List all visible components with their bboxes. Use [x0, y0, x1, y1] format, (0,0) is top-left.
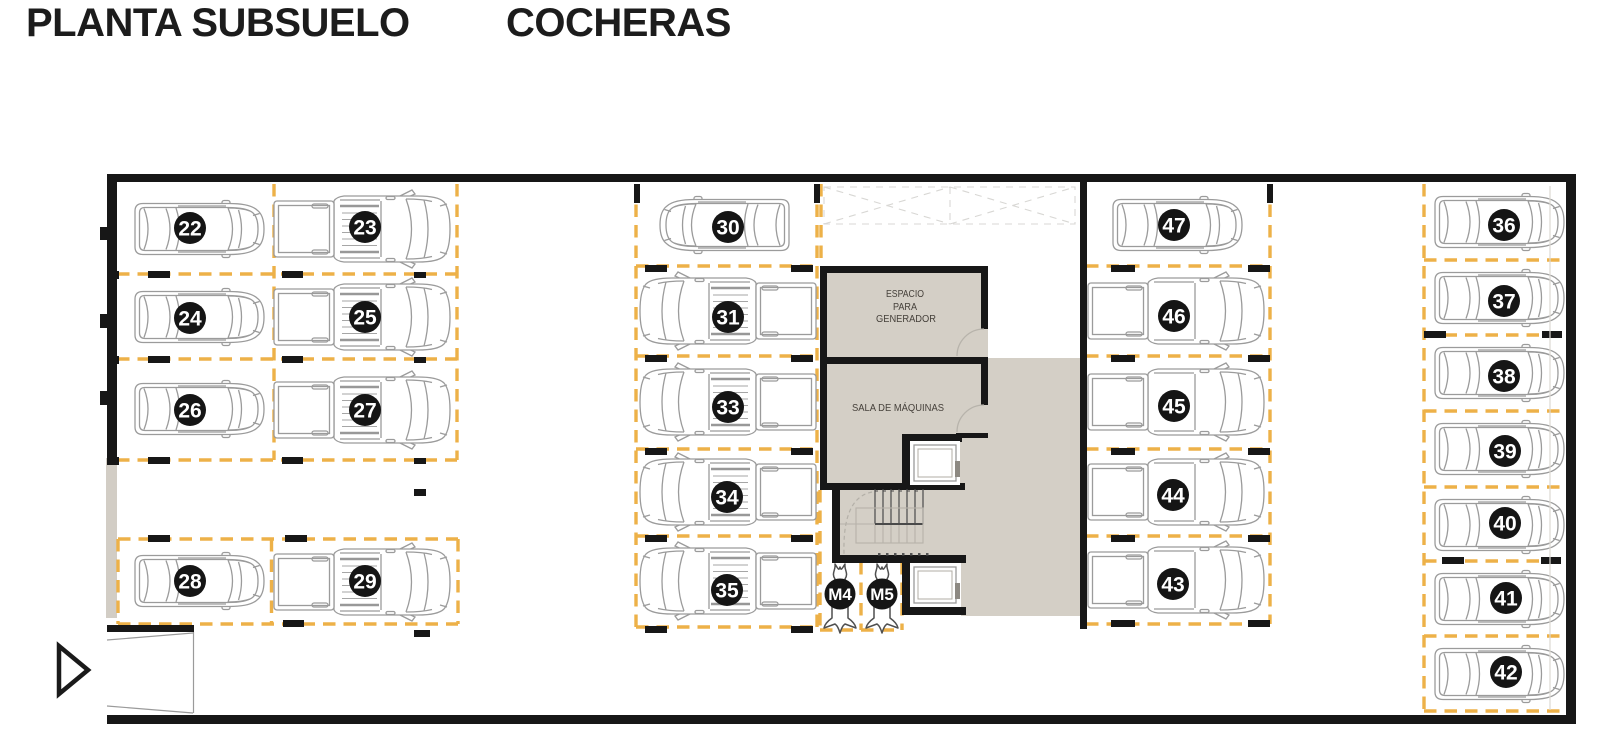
svg-text:40: 40	[1493, 513, 1516, 536]
svg-text:28: 28	[178, 571, 202, 594]
svg-text:GENERADOR: GENERADOR	[876, 313, 936, 325]
svg-text:31: 31	[716, 307, 740, 330]
svg-text:41: 41	[1494, 588, 1518, 611]
svg-text:M4: M4	[828, 585, 852, 604]
svg-text:35: 35	[715, 580, 739, 603]
svg-text:33: 33	[716, 397, 739, 420]
svg-text:43: 43	[1161, 574, 1184, 597]
svg-text:47: 47	[1162, 215, 1185, 238]
svg-text:36: 36	[1492, 215, 1515, 238]
svg-text:PLANTA SUBSUELO: PLANTA SUBSUELO	[26, 1, 410, 45]
svg-text:26: 26	[178, 400, 201, 423]
svg-text:ESPACIO: ESPACIO	[886, 288, 924, 300]
svg-text:42: 42	[1494, 662, 1517, 685]
svg-text:37: 37	[1492, 291, 1515, 314]
svg-text:27: 27	[353, 400, 376, 423]
svg-text:M5: M5	[870, 585, 894, 604]
svg-text:24: 24	[178, 308, 202, 331]
svg-text:22: 22	[178, 218, 201, 241]
svg-text:29: 29	[353, 571, 376, 594]
svg-text:38: 38	[1492, 366, 1516, 389]
svg-text:45: 45	[1162, 396, 1186, 419]
svg-text:34: 34	[715, 487, 739, 510]
svg-text:SALA DE MÁQUINAS: SALA DE MÁQUINAS	[852, 401, 944, 414]
svg-text:COCHERAS: COCHERAS	[506, 1, 731, 45]
svg-text:30: 30	[716, 217, 739, 240]
svg-text:23: 23	[353, 217, 376, 240]
svg-text:44: 44	[1161, 485, 1185, 508]
svg-text:46: 46	[1162, 306, 1185, 329]
svg-text:39: 39	[1493, 441, 1516, 464]
svg-text:25: 25	[353, 307, 377, 330]
svg-text:PARA: PARA	[893, 301, 917, 313]
